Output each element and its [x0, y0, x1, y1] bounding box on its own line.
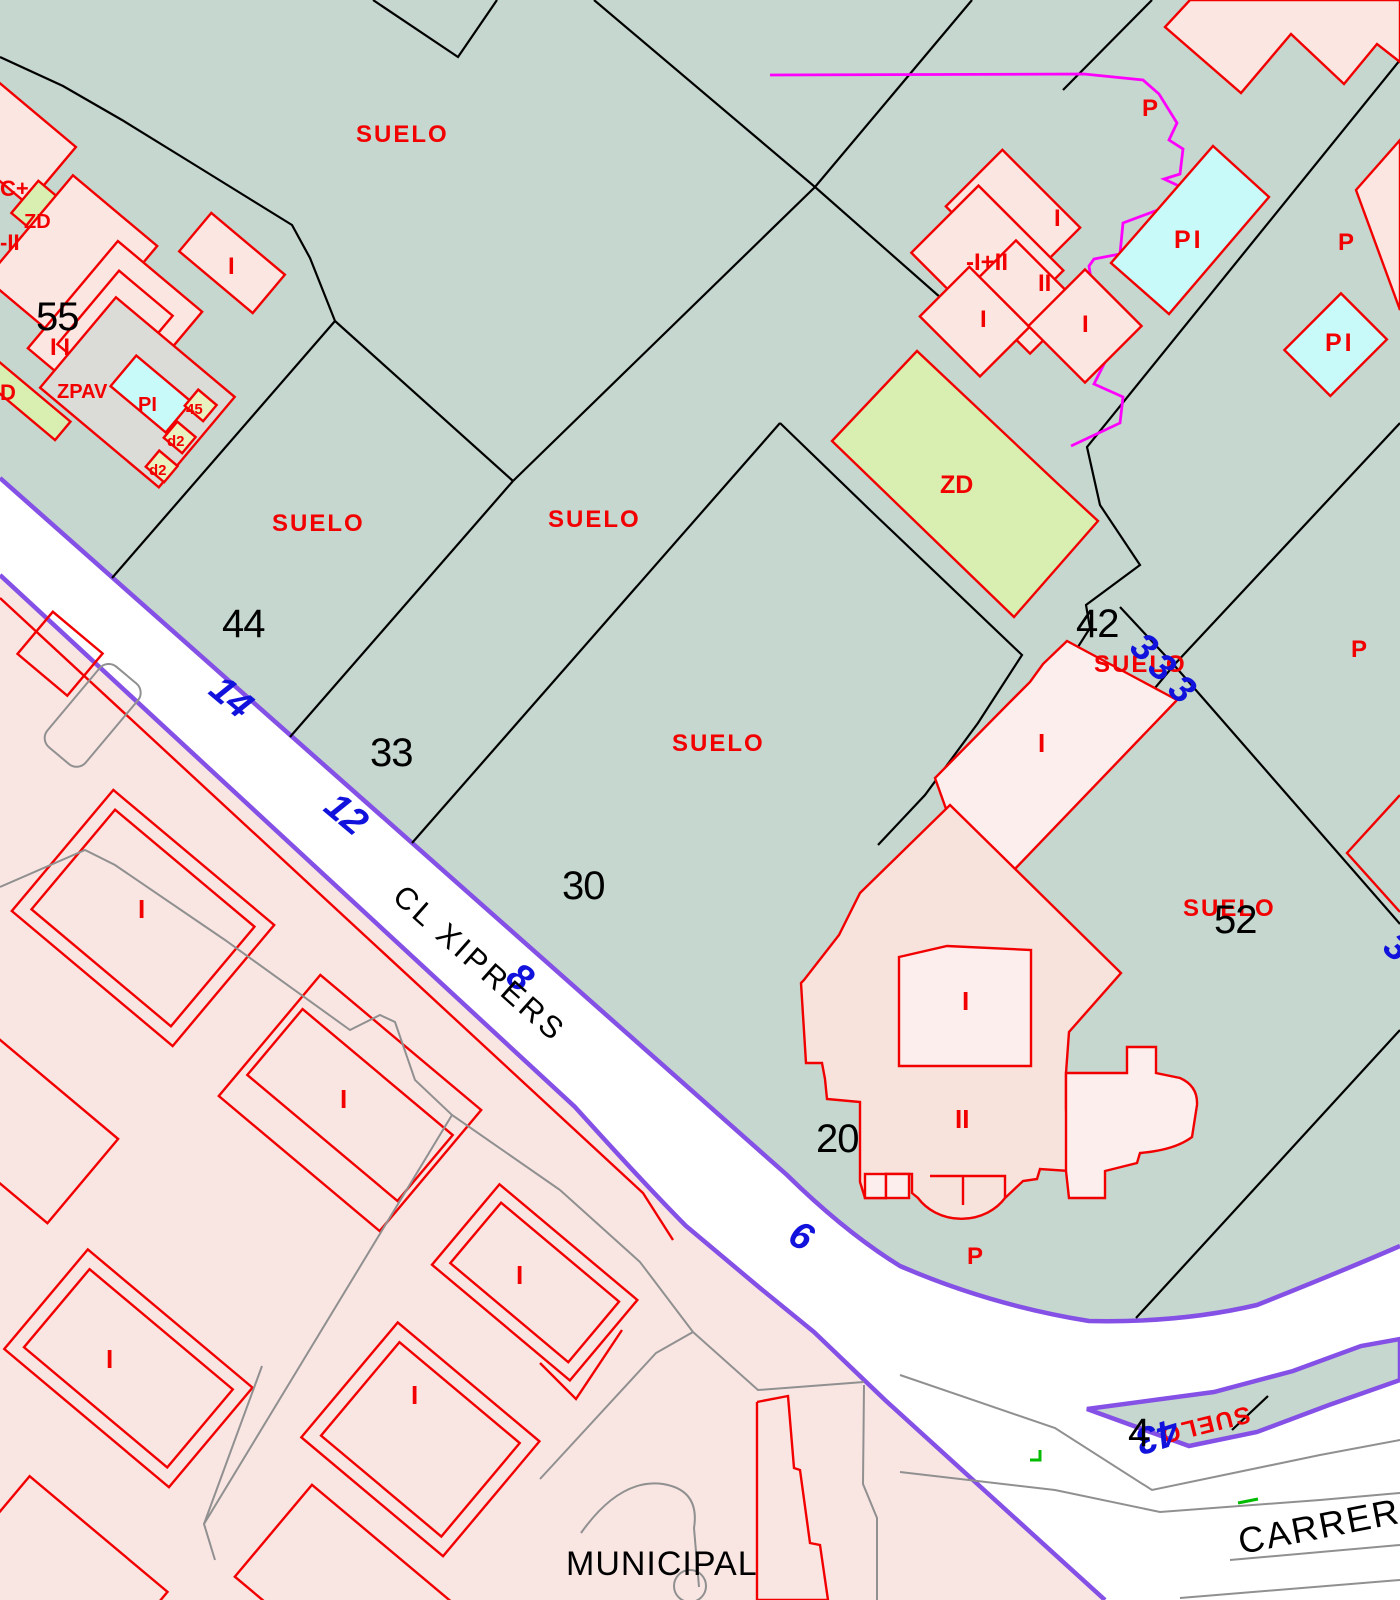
svg-text:ZPAV: ZPAV: [57, 381, 108, 403]
svg-text:I: I: [106, 1344, 113, 1374]
svg-text:I: I: [411, 1380, 418, 1410]
svg-text:I: I: [962, 986, 969, 1016]
svg-text:PI: PI: [1325, 329, 1355, 357]
svg-text:D: D: [0, 380, 16, 405]
svg-text:PI: PI: [138, 394, 157, 416]
svg-text:ZD: ZD: [24, 211, 51, 233]
svg-text:P: P: [967, 1243, 983, 1270]
svg-text:I: I: [1038, 728, 1045, 758]
svg-text:33: 33: [370, 731, 413, 775]
svg-text:52: 52: [1214, 898, 1257, 942]
svg-text:I: I: [1054, 205, 1061, 232]
svg-text:55: 55: [36, 295, 79, 339]
svg-text:42: 42: [1076, 602, 1119, 646]
svg-text:MUNICIPAL: MUNICIPAL: [566, 1545, 758, 1583]
svg-text:II: II: [1038, 270, 1051, 297]
svg-text:I: I: [138, 894, 145, 924]
svg-text:-II: -II: [0, 230, 20, 255]
svg-text:I: I: [980, 306, 987, 333]
svg-text:SUELO: SUELO: [272, 510, 365, 537]
svg-text:ZD: ZD: [940, 471, 973, 499]
svg-text:d2: d2: [149, 462, 167, 479]
svg-text:II: II: [955, 1104, 969, 1134]
svg-text:SUELO: SUELO: [548, 506, 641, 533]
svg-text:-I+II: -I+II: [966, 249, 1008, 276]
svg-text:P: P: [1338, 229, 1354, 256]
svg-text:P: P: [1142, 95, 1158, 122]
svg-text:44: 44: [222, 602, 265, 646]
svg-text:4: 4: [1128, 1411, 1150, 1455]
svg-text:SUELO: SUELO: [672, 730, 765, 757]
svg-text:SUELO: SUELO: [356, 121, 449, 148]
svg-text:C+: C+: [0, 176, 29, 201]
svg-text:30: 30: [562, 864, 605, 908]
svg-text:P: P: [1351, 636, 1367, 663]
svg-text:PI: PI: [1174, 226, 1204, 254]
svg-text:I: I: [1082, 311, 1089, 338]
svg-text:I: I: [340, 1084, 347, 1114]
svg-text:I: I: [228, 253, 235, 280]
svg-text:20: 20: [816, 1117, 859, 1161]
svg-text:45: 45: [186, 401, 203, 418]
svg-text:I: I: [516, 1260, 523, 1290]
svg-text:d2: d2: [167, 433, 185, 450]
svg-text:I I: I I: [50, 334, 70, 361]
